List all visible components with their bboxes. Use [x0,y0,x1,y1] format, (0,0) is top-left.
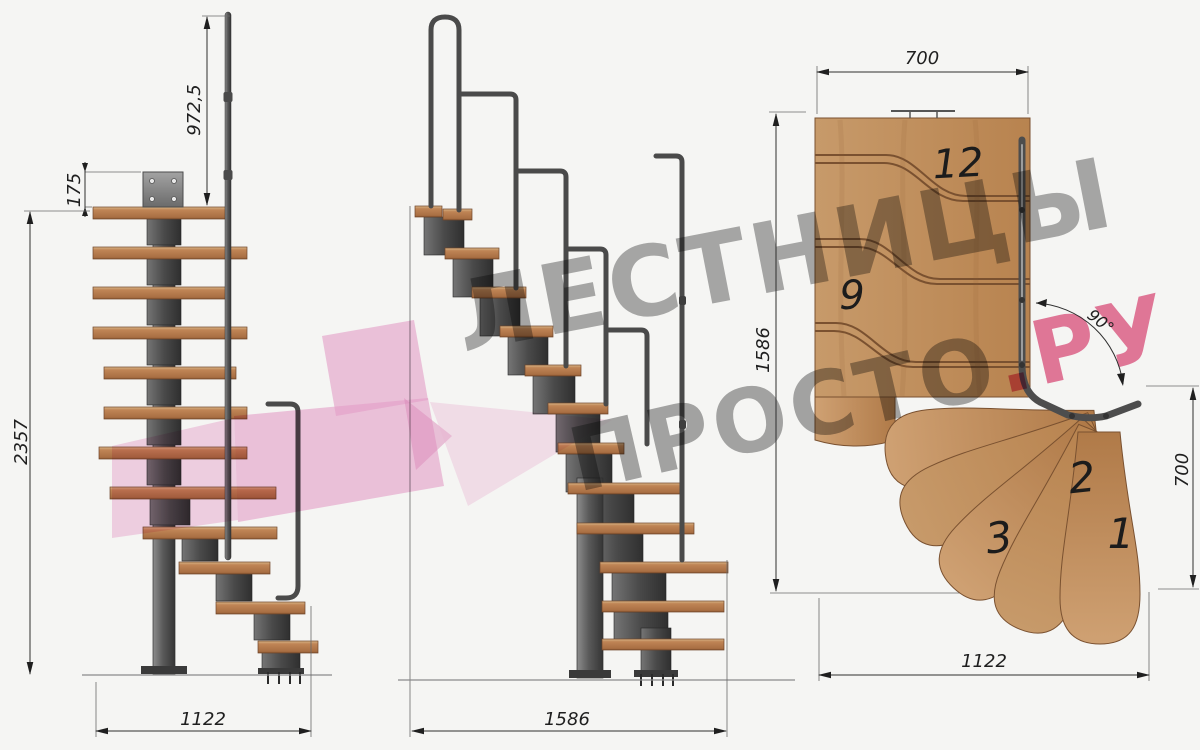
front-column-base-flange [141,666,187,674]
plan-step-number-12: 12 [931,140,984,189]
plan-step-number-1: 1 [1108,509,1135,558]
plan-step-number-2: 2 [1066,452,1098,504]
dim-front-plate-height: 175 [64,173,85,207]
dim-front-total-height: 2357 [11,419,32,465]
dim-side-length: 1586 [544,709,590,730]
staircase-technical-drawing: ЛЕСТНИЦЫ ПРОСТО.РУ 972,5 175 2357 1122 1… [0,0,1200,750]
front-post-joint [224,170,233,180]
dim-front-handrail-height: 972,5 [184,84,205,136]
dim-plan-flight-width: 700 [905,48,939,69]
dim-front-width: 1122 [180,709,226,730]
front-post-joint [224,92,233,102]
side-rail-loop [431,17,459,210]
dim-plan-exit-width: 700 [1172,453,1193,487]
dim-plan-length: 1586 [753,327,774,373]
drawing-svg: ЛЕСТНИЦЫ ПРОСТО.РУ 972,5 175 2357 1122 1… [0,0,1200,750]
side-end-column [641,628,671,676]
front-foot-flange [258,668,304,674]
side-column-flange [569,670,611,678]
dim-plan-total-length: 1122 [961,651,1007,672]
front-mounting-plate [143,172,183,207]
side-far-rail [656,156,682,560]
plan-step-number-9: 9 [839,273,864,319]
